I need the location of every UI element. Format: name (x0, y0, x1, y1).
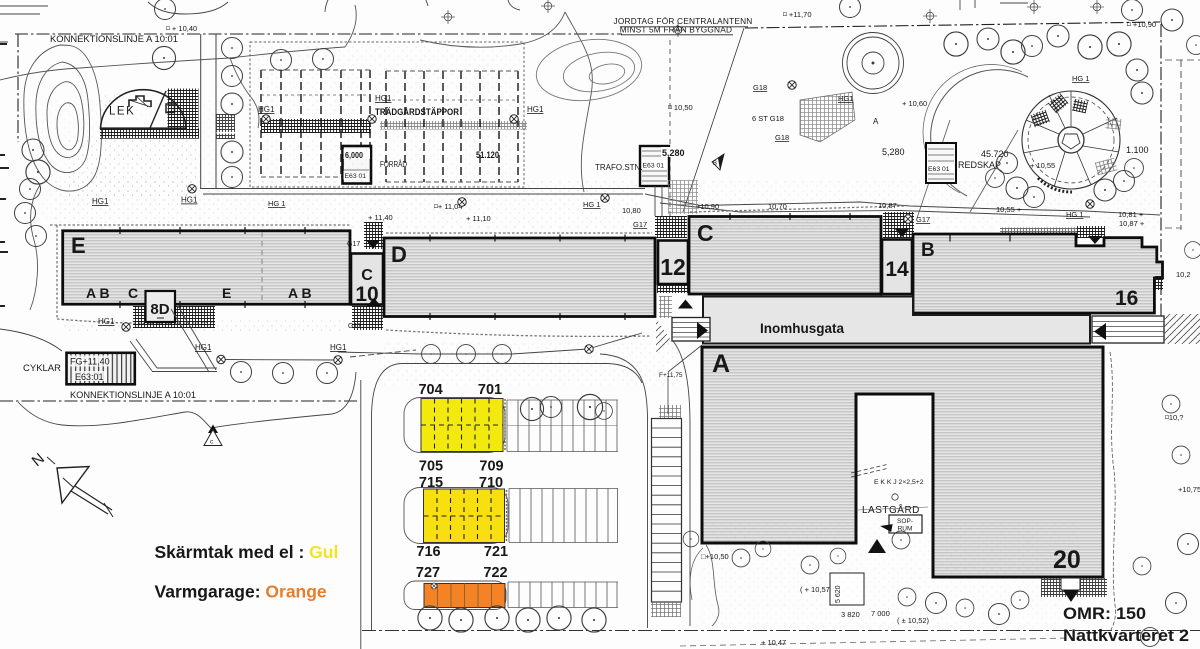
svg-text:TRAFO.STN.: TRAFO.STN. (595, 163, 643, 172)
svg-text:HG 1: HG 1 (1072, 74, 1090, 83)
svg-text:G18: G18 (775, 133, 789, 142)
svg-text:A B: A B (288, 285, 312, 301)
svg-text:HG1: HG1 (98, 317, 115, 326)
svg-text:HG1: HG1 (527, 105, 544, 114)
svg-text:C: C (128, 285, 138, 301)
svg-text:E K K J 2×2,5+2: E K K J 2×2,5+2 (874, 479, 924, 486)
svg-text:CYKLAR: CYKLAR (23, 363, 61, 374)
svg-text:G17: G17 (348, 323, 361, 330)
svg-text:709: 709 (479, 459, 503, 475)
svg-text:A: A (712, 350, 730, 378)
svg-text:45.720: 45.720 (981, 149, 1009, 159)
svg-text:⌑10,?: ⌑10,? (1165, 413, 1183, 422)
svg-text:HG1: HG1 (838, 94, 853, 103)
svg-text:705: 705 (419, 459, 443, 475)
svg-text:5,280: 5,280 (662, 148, 685, 158)
svg-text:E: E (71, 233, 86, 258)
svg-text:G18: G18 (753, 83, 767, 92)
svg-text:Skärmtak med el : Gul: Skärmtak med el : Gul (155, 542, 339, 562)
svg-text:16: 16 (1115, 287, 1138, 310)
svg-text:⌑ +10,90: ⌑ +10,90 (1127, 20, 1156, 29)
svg-text:E63:01: E63:01 (75, 372, 104, 382)
svg-text:E63 01: E63 01 (643, 163, 665, 170)
svg-text:721: 721 (484, 544, 508, 560)
svg-text:6 ST G18: 6 ST G18 (752, 114, 784, 123)
svg-text:722: 722 (483, 565, 507, 581)
svg-text:10,2: 10,2 (1176, 270, 1191, 279)
svg-text:E: E (222, 285, 231, 301)
svg-text:+ 10,47: + 10,47 (761, 638, 786, 647)
svg-text:HG1: HG1 (195, 343, 212, 352)
svg-text:14: 14 (885, 258, 909, 281)
svg-text:A B: A B (86, 285, 110, 301)
svg-text:715: 715 (419, 475, 443, 491)
svg-text:+ 10,55: + 10,55 (1030, 161, 1055, 170)
svg-text:MINST 5M FRÅN BYGGNAD: MINST 5M FRÅN BYGGNAD (620, 25, 732, 35)
svg-text:5,280: 5,280 (882, 147, 905, 157)
svg-text:710: 710 (479, 475, 503, 491)
svg-text:Inomhusgata: Inomhusgata (760, 321, 844, 336)
svg-text:8D: 8D (150, 301, 169, 318)
svg-text:C: C (361, 267, 373, 284)
svg-text:OMR: 150: OMR: 150 (1063, 604, 1146, 623)
svg-text:A: A (873, 117, 879, 126)
svg-text:E63 01: E63 01 (928, 166, 950, 173)
svg-text:716: 716 (416, 544, 440, 560)
svg-text:D: D (391, 242, 407, 267)
svg-text:G17: G17 (347, 241, 360, 248)
svg-text:Varmgarage: Orange: Varmgarage: Orange (155, 582, 327, 602)
svg-text:12: 12 (660, 254, 686, 280)
svg-text:+10,75: +10,75 (1178, 485, 1200, 494)
svg-text:FG+11,40: FG+11,40 (70, 357, 110, 367)
svg-text:⌑ 10,50: ⌑ 10,50 (668, 103, 693, 112)
svg-text:1.100: 1.100 (1126, 145, 1149, 155)
svg-text:KONNEKTIONSLINJE A 10:01: KONNEKTIONSLINJE A 10:01 (70, 390, 196, 401)
svg-text:Nattkvarteret 2: Nattkvarteret 2 (1063, 627, 1189, 645)
svg-text:HG1: HG1 (330, 343, 347, 352)
svg-text:B: B (713, 161, 717, 167)
svg-text:+ 10,60: + 10,60 (902, 99, 927, 108)
svg-text:KONNEKTIONSLINJE A 10:01: KONNEKTIONSLINJE A 10:01 (50, 34, 178, 45)
svg-text:⌑ +11,70: ⌑ +11,70 (783, 10, 812, 19)
svg-text:⌑ + 10,40: ⌑ + 10,40 (166, 24, 197, 33)
svg-text:B: B (921, 240, 935, 261)
svg-text:727: 727 (416, 565, 440, 581)
